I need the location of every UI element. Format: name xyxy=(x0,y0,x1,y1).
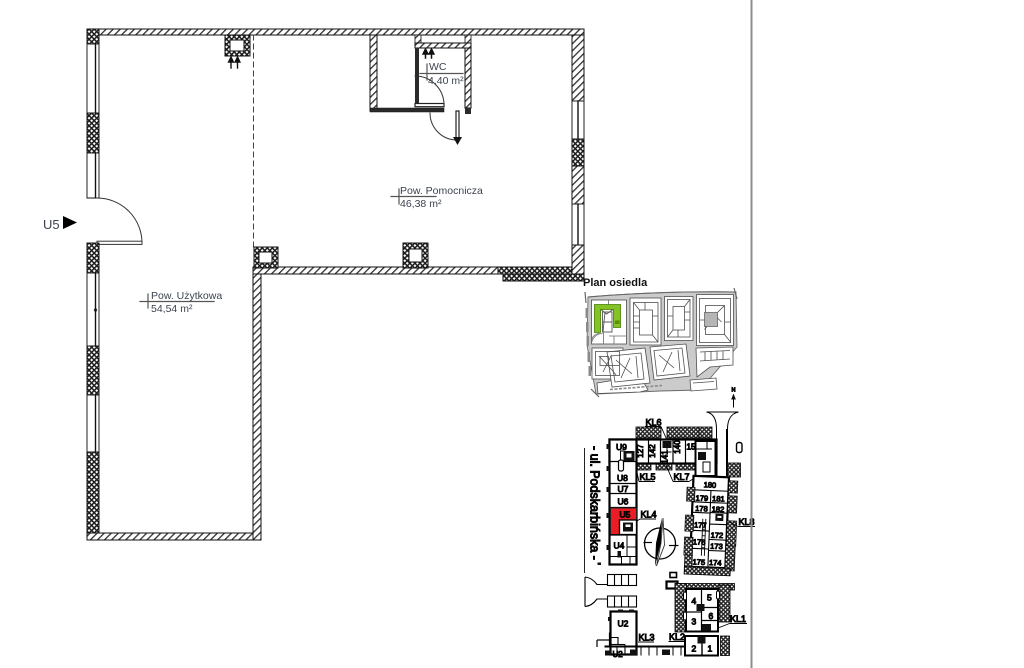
svg-text:6: 6 xyxy=(709,611,714,621)
svg-text:U2: U2 xyxy=(618,619,629,629)
svg-text:KL3: KL3 xyxy=(639,633,655,643)
svg-text:U5: U5 xyxy=(43,217,60,232)
svg-text:181: 181 xyxy=(712,494,725,503)
svg-text:Plan osiedla: Plan osiedla xyxy=(583,277,648,289)
svg-text:U4: U4 xyxy=(614,541,625,551)
svg-text:173: 173 xyxy=(710,542,723,551)
svg-text:KL7: KL7 xyxy=(674,472,690,482)
svg-text:174: 174 xyxy=(709,558,722,567)
svg-text:1: 1 xyxy=(708,644,713,654)
svg-text:172: 172 xyxy=(710,531,723,540)
svg-text:176: 176 xyxy=(693,537,706,546)
svg-text:142: 142 xyxy=(648,444,657,458)
svg-text:KL1: KL1 xyxy=(730,614,746,624)
svg-text:4: 4 xyxy=(692,596,697,606)
svg-text:180: 180 xyxy=(704,480,717,489)
svg-text:KL2: KL2 xyxy=(669,632,685,642)
svg-text:U7: U7 xyxy=(618,484,629,494)
svg-text:141: 141 xyxy=(661,450,670,464)
svg-text:178: 178 xyxy=(695,504,708,513)
svg-text:3: 3 xyxy=(692,617,697,627)
svg-text:KL4: KL4 xyxy=(641,510,657,520)
svg-text:4,40 m²: 4,40 m² xyxy=(428,75,464,87)
svg-text:N: N xyxy=(732,388,736,394)
svg-text:U2: U2 xyxy=(613,650,624,659)
svg-text:177: 177 xyxy=(694,520,707,529)
svg-text:WC: WC xyxy=(429,61,447,73)
svg-text:U9: U9 xyxy=(616,442,627,452)
svg-text:179: 179 xyxy=(695,493,708,502)
svg-text:140: 140 xyxy=(673,440,682,454)
svg-text:KL5: KL5 xyxy=(640,472,656,482)
svg-text:5: 5 xyxy=(707,593,712,603)
svg-text:U6: U6 xyxy=(618,497,629,507)
svg-text:U5: U5 xyxy=(620,510,631,520)
svg-text:2: 2 xyxy=(692,644,697,654)
svg-text:U8: U8 xyxy=(617,473,628,483)
svg-text:175: 175 xyxy=(692,557,705,566)
svg-text:46,38 m²: 46,38 m² xyxy=(400,198,442,210)
svg-text:Pow. Pomocnicza: Pow. Pomocnicza xyxy=(400,185,483,197)
svg-text:Pow. Użytkowa: Pow. Użytkowa xyxy=(151,290,222,302)
svg-text:54,54 m²: 54,54 m² xyxy=(151,303,193,315)
svg-text:182: 182 xyxy=(712,505,725,514)
svg-text:- ul. Podskarbińska -: - ul. Podskarbińska - xyxy=(588,446,602,560)
